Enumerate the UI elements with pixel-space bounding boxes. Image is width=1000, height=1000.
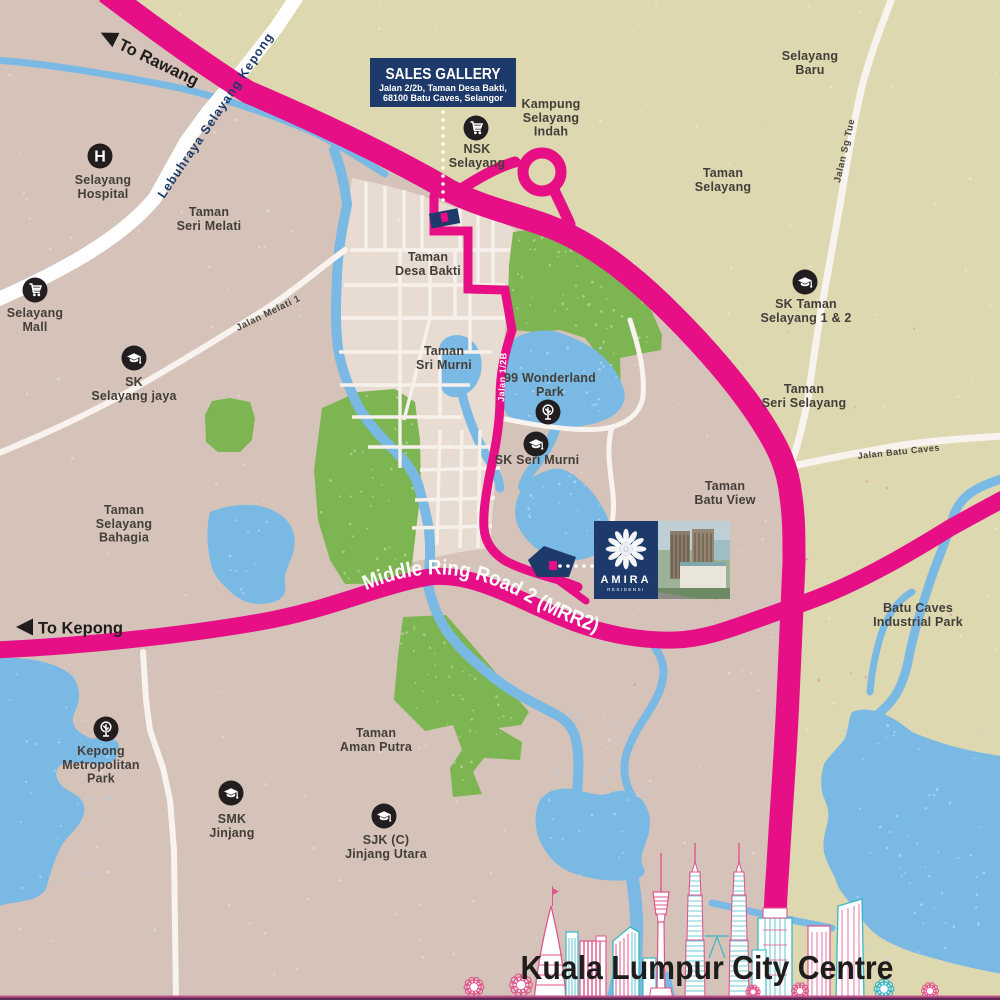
- svg-text:RESIDENSI: RESIDENSI: [607, 587, 645, 592]
- svg-text:SALES GALLERY: SALES GALLERY: [386, 66, 501, 83]
- svg-text:TamanSri Murni: TamanSri Murni: [416, 344, 472, 372]
- svg-text:Kuala Lumpur City Centre: Kuala Lumpur City Centre: [521, 949, 894, 986]
- svg-text:TamanSelayangBahagia: TamanSelayangBahagia: [96, 503, 153, 545]
- svg-text:AMIRA: AMIRA: [600, 574, 651, 586]
- svg-text:Batu CavesIndustrial Park: Batu CavesIndustrial Park: [873, 601, 963, 629]
- svg-text:68100 Batu Caves, Selangor: 68100 Batu Caves, Selangor: [383, 93, 504, 103]
- svg-text:H: H: [94, 149, 106, 166]
- svg-text:TamanSelayang: TamanSelayang: [695, 166, 752, 194]
- svg-text:To Kepong: To Kepong: [38, 620, 123, 638]
- svg-text:SelayangHospital: SelayangHospital: [75, 173, 132, 201]
- svg-text:Jalan 2/2b, Taman Desa Bakti,: Jalan 2/2b, Taman Desa Bakti,: [379, 83, 507, 93]
- svg-text:SK Seri Murni: SK Seri Murni: [495, 453, 580, 467]
